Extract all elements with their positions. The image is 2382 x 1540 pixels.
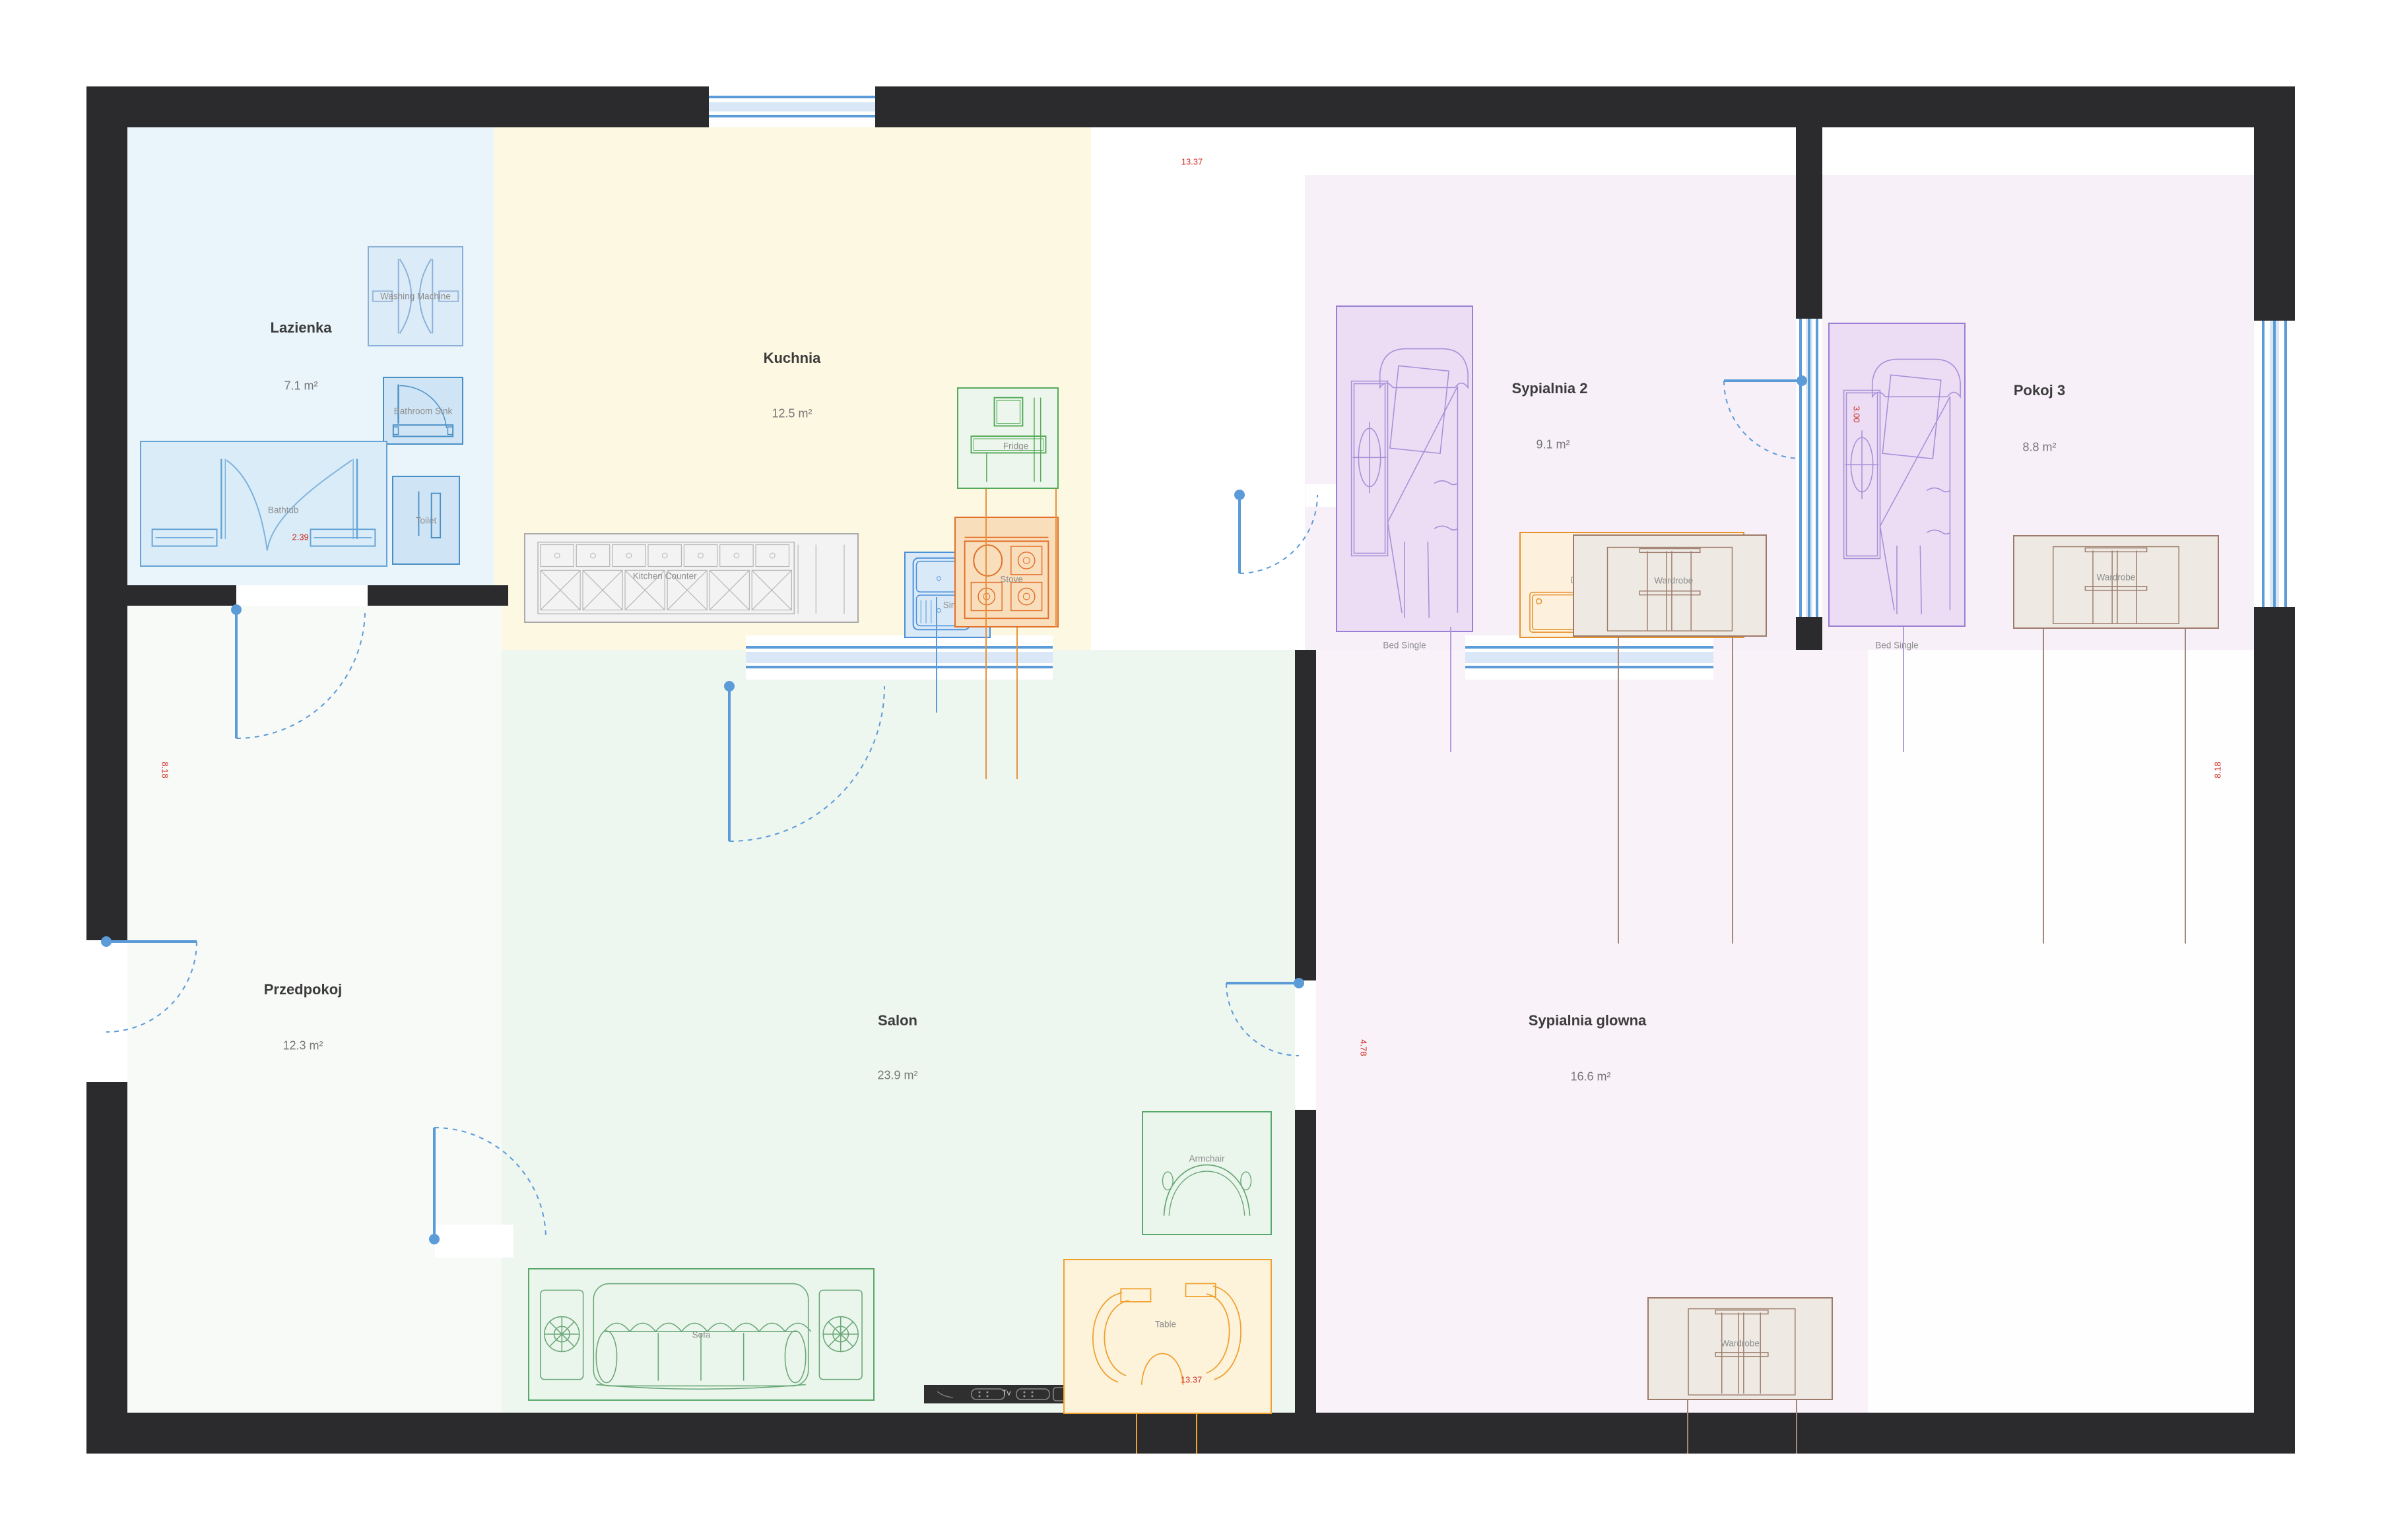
wardrobe-icon bbox=[1649, 1299, 1832, 1399]
bed-single-3-label: Bed Single bbox=[1875, 641, 1918, 651]
bed-single-2-label: Bed Single bbox=[1383, 641, 1426, 651]
bathroom-sink[interactable]: Bathroom Sink bbox=[383, 377, 463, 445]
window-top bbox=[709, 86, 875, 127]
room-title-pokoj3: Pokoj 3 bbox=[2014, 382, 2065, 399]
room-unlabeled bbox=[1868, 650, 2254, 1413]
bathtub-icon bbox=[141, 442, 386, 565]
wardrobe-2[interactable]: Wardrobe bbox=[1573, 534, 1767, 637]
tv-label: Tv bbox=[1002, 1388, 1010, 1397]
room-area-przedpokoj: 12.3 m² bbox=[282, 1039, 323, 1053]
stove-label: Stove bbox=[1000, 575, 1023, 585]
room-area-lazienka: 7.1 m² bbox=[284, 379, 317, 393]
dimension-salon-wall: 4.78 bbox=[1359, 1039, 1369, 1056]
window-s2-p3 bbox=[1796, 319, 1822, 617]
stove[interactable]: Stove bbox=[954, 517, 1059, 627]
bathroom-sink-label: Bathroom Sink bbox=[394, 406, 453, 416]
bed-3-dimension: 3.00 bbox=[1851, 406, 1861, 422]
bed-single-3[interactable]: 3.00 bbox=[1828, 323, 1966, 627]
kitchen-counter[interactable]: Kitchen Counter bbox=[524, 533, 859, 623]
dimension-right: 8.18 bbox=[2213, 761, 2223, 778]
wall-lazienka-b bbox=[368, 585, 508, 606]
room-area-pokoj3: 8.8 m² bbox=[2022, 441, 2056, 455]
window-sypialnia2 bbox=[1465, 635, 1713, 680]
wall-s2-p3-a bbox=[1796, 127, 1822, 319]
opening-sypialnia-glowna bbox=[1295, 980, 1316, 1110]
toilet-label: Toilet bbox=[416, 515, 437, 525]
window-pokoj3-right bbox=[2254, 321, 2295, 607]
window-glass bbox=[746, 652, 1053, 662]
window-line bbox=[746, 666, 1053, 668]
table[interactable]: Table bbox=[1063, 1259, 1272, 1414]
wardrobe-main-label: Wardrobe bbox=[1721, 1339, 1760, 1349]
room-title-przedpokoj: Przedpokoj bbox=[264, 981, 343, 998]
room-title-salon: Salon bbox=[878, 1012, 917, 1029]
wardrobe-3-label: Wardrobe bbox=[2097, 573, 2136, 583]
dimension-bottom: 13.37 bbox=[1181, 1375, 1203, 1385]
window-glass bbox=[1465, 652, 1713, 662]
window-glass bbox=[709, 102, 875, 112]
bed-icon bbox=[1337, 307, 1472, 631]
wall-left-upper bbox=[86, 86, 127, 940]
wall-top-right bbox=[875, 86, 2295, 127]
room-przedpokoj bbox=[127, 606, 502, 1413]
room-area-sypialnia2: 9.1 m² bbox=[1536, 438, 1570, 452]
dimension-left: 8.18 bbox=[160, 761, 170, 778]
window-line bbox=[1799, 319, 1802, 617]
wall-salon-sg-a bbox=[1295, 650, 1316, 980]
window-line bbox=[1465, 666, 1713, 668]
bathtub-label: Bathtub bbox=[268, 505, 299, 515]
window-line bbox=[2284, 321, 2287, 607]
toilet[interactable]: Toilet bbox=[392, 476, 460, 565]
bathtub[interactable]: Bathtub 2.39 bbox=[140, 441, 387, 567]
armchair-icon bbox=[1143, 1112, 1271, 1234]
wall-bottom bbox=[86, 1413, 2295, 1454]
window-line bbox=[746, 646, 1053, 649]
floor-plan: Washing Machine Bathroom Sink Bathtub 2.… bbox=[0, 0, 2382, 1540]
room-title-lazienka: Lazienka bbox=[271, 319, 332, 337]
room-area-kuchnia: 12.5 m² bbox=[772, 407, 812, 421]
armchair-label: Armchair bbox=[1189, 1153, 1224, 1163]
wall-lazienka-a bbox=[127, 585, 236, 606]
wall-right-upper bbox=[2254, 86, 2295, 321]
sofa[interactable]: Sofa bbox=[528, 1268, 875, 1401]
kitchen-counter-label: Kitchen Counter bbox=[633, 571, 697, 581]
window-line bbox=[2273, 321, 2276, 607]
window-line bbox=[709, 96, 875, 98]
wall-right-lower bbox=[2254, 607, 2295, 1454]
room-title-sypialnia2: Sypialnia 2 bbox=[1512, 380, 1588, 397]
window-line bbox=[1816, 319, 1818, 617]
window-kitchen-salon bbox=[746, 635, 1053, 680]
washing-machine[interactable]: Washing Machine bbox=[368, 246, 463, 346]
room-area-salon: 23.9 m² bbox=[877, 1069, 917, 1083]
opening-entrance bbox=[86, 940, 127, 1082]
room-area-sypialnia-glowna: 16.6 m² bbox=[1570, 1070, 1610, 1084]
stove-icon bbox=[956, 518, 1057, 626]
window-line bbox=[2262, 321, 2265, 607]
armchair[interactable]: Armchair bbox=[1142, 1111, 1272, 1235]
washing-machine-label: Washing Machine bbox=[380, 292, 451, 302]
wardrobe-main[interactable]: Wardrobe bbox=[1647, 1297, 1833, 1400]
wall-top-left bbox=[86, 86, 709, 127]
window-line bbox=[1808, 319, 1810, 617]
sofa-label: Sofa bbox=[692, 1330, 711, 1339]
opening-przedpokoj-salon bbox=[435, 1225, 513, 1258]
window-line bbox=[1465, 646, 1713, 649]
bed-icon bbox=[1830, 324, 1964, 626]
bed-single-2[interactable] bbox=[1336, 305, 1473, 632]
bathtub-dimension: 2.39 bbox=[292, 532, 308, 542]
wardrobe-3[interactable]: Wardrobe bbox=[2013, 535, 2219, 629]
wall-s2-p3-b bbox=[1796, 617, 1822, 650]
room-title-kuchnia: Kuchnia bbox=[764, 350, 821, 367]
window-line bbox=[709, 115, 875, 117]
fridge[interactable]: Fridge bbox=[957, 387, 1059, 489]
wardrobe-icon bbox=[1574, 536, 1766, 635]
table-icon bbox=[1065, 1260, 1271, 1413]
tv[interactable]: Tv bbox=[924, 1385, 1082, 1403]
wardrobe-2-label: Wardrobe bbox=[1654, 575, 1693, 585]
room-title-sypialnia-glowna: Sypialnia glowna bbox=[1529, 1012, 1646, 1029]
wall-salon-sg-b bbox=[1295, 1110, 1316, 1413]
wall-left-lower bbox=[86, 1082, 127, 1454]
table-label: Table bbox=[1155, 1320, 1176, 1330]
dimension-top: 13.37 bbox=[1181, 157, 1203, 167]
fridge-label: Fridge bbox=[1003, 441, 1028, 451]
fridge-icon bbox=[958, 389, 1057, 488]
